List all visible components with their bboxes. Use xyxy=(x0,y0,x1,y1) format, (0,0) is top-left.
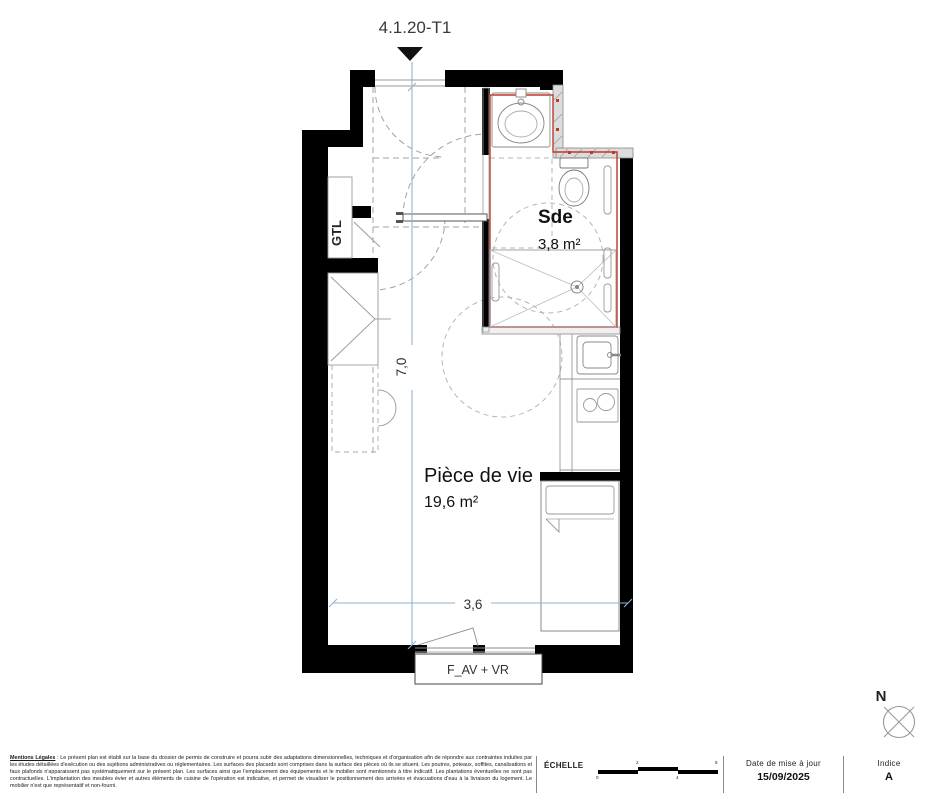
closet-door-swing xyxy=(373,218,445,290)
update-date-label: Date de mise à jour xyxy=(724,759,843,768)
update-date-value: 15/09/2025 xyxy=(724,771,843,783)
wall-bottom-right xyxy=(535,645,633,673)
legal-mentions: Mentions Légales : Le présent plan est é… xyxy=(10,755,532,790)
index-label: Indice xyxy=(844,759,934,768)
floor-plan-page: 4.1.20-T1 xyxy=(0,0,934,800)
wall-top-left-stub xyxy=(350,70,375,87)
room-name-piece-de-vie: Pièce de vie xyxy=(424,465,533,487)
wall-gtl-stub xyxy=(352,206,371,218)
plan-title: 4.1.20-T1 xyxy=(379,18,452,61)
north-label: N xyxy=(876,688,887,705)
bathroom-thin-walls xyxy=(553,85,633,158)
room-area-piece-de-vie: 19,6 m² xyxy=(424,494,479,511)
chair xyxy=(378,390,396,426)
kitchen-sink-icon xyxy=(577,336,621,374)
room-labels: Sde 3,8 m² Pièce de vie 19,6 m² xyxy=(424,207,581,511)
wall-bed-stub xyxy=(540,472,620,481)
cooktop-icon xyxy=(577,389,618,422)
room-area-sde: 3,8 m² xyxy=(538,236,581,253)
legal-mentions-title: Mentions Légales xyxy=(10,755,55,761)
wall-bottom-left xyxy=(328,645,415,673)
title-block: Mentions Légales : Le présent plan est é… xyxy=(0,750,934,800)
scale-tick: 0 xyxy=(596,775,599,780)
bathroom-sink-icon xyxy=(492,89,550,147)
dimension-vertical-label: 7,0 xyxy=(394,358,409,377)
pointer-triangle-icon xyxy=(397,47,423,61)
bathroom-door xyxy=(396,212,487,223)
window-label: F_AV + VR xyxy=(447,663,509,677)
room-name-sde: Sde xyxy=(538,207,573,228)
update-date-cell: Date de mise à jour 15/09/2025 xyxy=(724,759,843,783)
bathroom-door-swing xyxy=(403,134,487,218)
legal-mentions-body: : Le présent plan est établi sur la base… xyxy=(10,755,532,789)
wall-gtl-sill xyxy=(328,258,378,273)
desk xyxy=(332,365,396,452)
wardrobe xyxy=(328,273,391,365)
scale-label: ÉCHELLE xyxy=(544,761,583,770)
gtl-door xyxy=(354,222,380,247)
index-value: A xyxy=(844,771,934,783)
unit-reference-label: 4.1.20-T1 xyxy=(379,18,452,37)
bed xyxy=(541,481,619,631)
entry-threshold xyxy=(375,80,445,86)
wall-fixing-markers xyxy=(556,99,615,154)
door-swing-arcs xyxy=(373,87,487,290)
scale-bar: 0 2 4 8 xyxy=(598,766,718,780)
index-cell: Indice A xyxy=(844,759,934,783)
north-compass-icon: N xyxy=(876,688,915,738)
scale-tick: 8 xyxy=(715,760,718,765)
scale-tick: 2 xyxy=(636,760,639,765)
casement-swing xyxy=(418,628,478,646)
dimension-horizontal-label: 3,6 xyxy=(464,597,483,612)
living-clearance-circle xyxy=(442,297,562,417)
scale-tick: 4 xyxy=(676,775,679,780)
toilet-icon xyxy=(559,158,589,206)
bathroom-bottom-wall xyxy=(482,327,620,334)
footer-divider xyxy=(536,756,537,793)
floor-plan-drawing: 4.1.20-T1 xyxy=(0,0,934,750)
dashed-guides xyxy=(373,87,481,453)
wall-top xyxy=(445,70,563,87)
wall-left-step xyxy=(302,130,363,147)
wall-right-outer xyxy=(620,150,633,645)
shower xyxy=(490,250,616,327)
gtl-label: GTL xyxy=(329,220,344,246)
wall-left-outer xyxy=(302,147,328,673)
entry-door-swing xyxy=(375,87,445,157)
kitchenette xyxy=(560,334,621,472)
window-f-av-vr: F_AV + VR xyxy=(415,628,542,684)
